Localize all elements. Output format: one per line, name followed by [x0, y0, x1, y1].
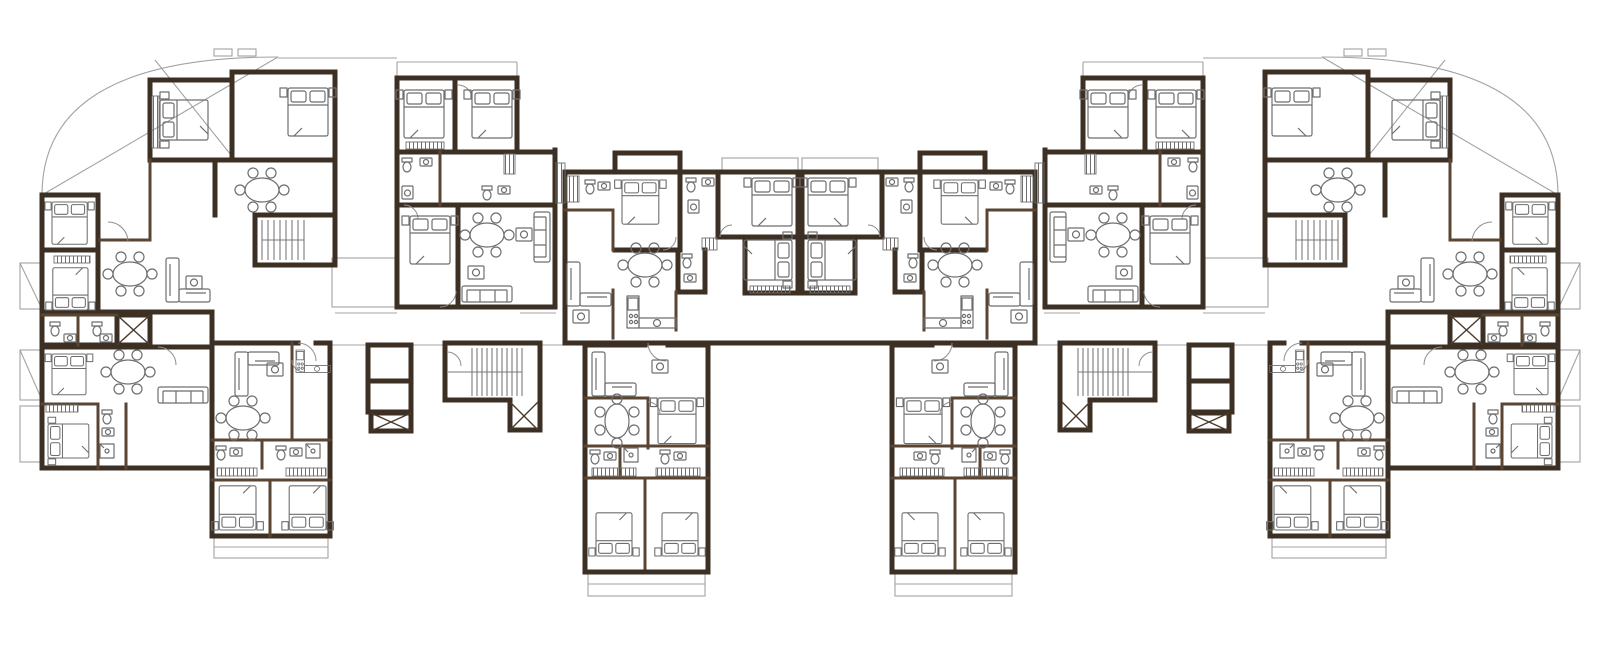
wardrobe-icon: [406, 142, 444, 149]
bed-icon: [282, 486, 334, 530]
elevator-x-icon: [117, 315, 150, 345]
sofa-icon: [462, 286, 512, 302]
shower-icon: [624, 448, 638, 462]
bed-icon: [45, 202, 94, 244]
wardrobe-icon: [504, 154, 515, 174]
wardrobe-icon: [750, 286, 790, 293]
shower-icon: [100, 444, 114, 458]
toilet-icon: [590, 450, 600, 464]
bed-icon: [650, 398, 703, 444]
wardrobe-icon: [656, 468, 700, 476]
dining-table-icon: [595, 394, 639, 448]
partition-walls: [42, 152, 708, 568]
dining-table-icon: [103, 252, 157, 296]
door-arc: [298, 343, 316, 361]
bed-icon: [589, 513, 639, 556]
toilet-icon: [402, 158, 412, 172]
toilet-icon: [660, 450, 670, 464]
bed-icon: [280, 88, 336, 136]
bed-icon: [46, 268, 95, 310]
bed-icon: [45, 354, 93, 395]
coffee-table-icon: [468, 266, 484, 279]
left-wing: [20, 49, 800, 596]
dining-table-icon: [101, 350, 155, 394]
wardrobe-icon: [592, 468, 636, 476]
wardrobe-icon: [152, 96, 159, 148]
balcony-rail: [278, 58, 517, 78]
balcony-rail: [332, 258, 395, 307]
toilet-icon: [585, 180, 595, 194]
sink-icon: [598, 182, 610, 190]
corridor-line: [330, 313, 585, 345]
dining-table-icon: [235, 168, 289, 212]
bed-icon: [615, 180, 667, 224]
bed-icon: [48, 417, 89, 465]
wardrobe-icon: [217, 468, 257, 476]
balcony-brace: [20, 263, 42, 400]
bed-icon: [744, 232, 792, 288]
door-arc: [648, 343, 666, 361]
sink-icon: [64, 334, 76, 342]
toilet-icon: [216, 446, 226, 460]
walls-service-cores: [368, 343, 540, 431]
sink-icon: [230, 448, 242, 456]
sink-icon: [290, 448, 302, 456]
right-wing-mirror: [800, 49, 1580, 596]
floor-plan-canvas: [0, 0, 1600, 645]
bed-icon: [744, 178, 800, 226]
toilet-icon: [682, 254, 692, 268]
kitchen-counter-icon: [627, 296, 676, 328]
toilet-icon: [276, 446, 286, 460]
dining-table-icon: [216, 396, 270, 440]
shaft-hatch: [567, 176, 579, 202]
door-arc: [292, 360, 304, 372]
door-arc: [447, 352, 461, 366]
shaft-hatch: [556, 163, 565, 203]
sofa-icon: [235, 352, 279, 396]
sink-icon: [102, 428, 114, 436]
shaft-hatch: [702, 238, 717, 250]
bed-icon: [655, 513, 705, 556]
elevator-x-icon: [510, 402, 538, 430]
floor-plan-svg: [0, 0, 1600, 645]
bed-icon: [402, 216, 458, 264]
washer-icon: [688, 200, 699, 213]
staircase-treads: [262, 220, 304, 260]
wardrobe-icon: [286, 468, 326, 476]
sofa-icon: [592, 352, 636, 396]
sofa-icon: [158, 387, 208, 403]
door-arc: [458, 85, 472, 99]
wardrobe-icon: [54, 256, 90, 263]
toilet-icon: [102, 410, 112, 424]
sofa-icon: [166, 258, 210, 302]
staircase-treads: [448, 348, 522, 396]
walls-partitions: [42, 152, 708, 568]
sink-icon: [674, 452, 686, 460]
thin-lines-terrace-balconies: [20, 49, 798, 596]
sofa-icon: [534, 212, 550, 262]
walls-corner-apartment-upper: [42, 72, 335, 345]
dining-table-icon: [460, 213, 514, 257]
planter: [238, 49, 256, 56]
sink-icon: [702, 178, 714, 186]
sink-icon: [100, 334, 112, 342]
coffee-table-icon: [186, 276, 202, 289]
sink-icon: [684, 274, 696, 282]
sink-icon: [604, 452, 616, 460]
coffee-table-icon: [652, 360, 668, 373]
kitchen-counter-icon: [296, 350, 330, 372]
sink-icon: [498, 186, 510, 194]
sink-icon: [420, 158, 432, 166]
planter: [214, 49, 232, 56]
coffee-table-icon: [516, 228, 532, 241]
washer-icon: [402, 186, 413, 199]
walls-top-middle-apartment: [397, 78, 555, 307]
elevator-x-icon: [371, 413, 411, 431]
shower-icon: [306, 444, 320, 458]
coffee-table-icon: [573, 310, 589, 323]
wardrobe-icon: [46, 405, 78, 412]
bed-icon: [464, 90, 520, 138]
bed-icon: [212, 486, 264, 530]
bed-icon: [396, 90, 452, 138]
door-arc: [158, 347, 176, 365]
toilet-icon: [686, 178, 696, 192]
bed-icon: [160, 92, 208, 148]
toilet-icon: [50, 322, 60, 336]
sofa-icon: [567, 262, 611, 306]
balcony-rail: [20, 406, 42, 462]
toilet-icon: [482, 186, 492, 200]
